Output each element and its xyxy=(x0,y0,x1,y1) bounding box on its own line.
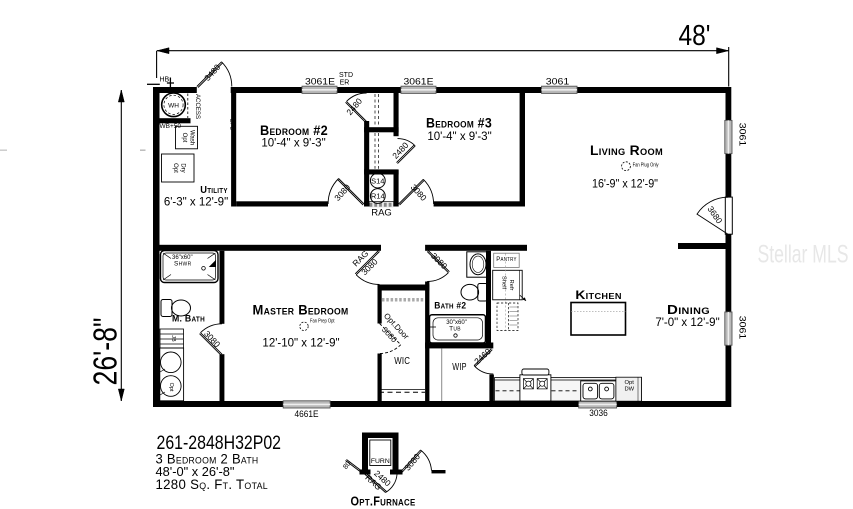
svg-text:3061: 3061 xyxy=(738,316,748,340)
svg-text:1280 Sq. Ft. Total: 1280 Sq. Ft. Total xyxy=(156,477,269,492)
svg-text:Pantry: Pantry xyxy=(496,256,517,263)
svg-text:HB: HB xyxy=(160,77,170,84)
svg-text:Bedroom #3: Bedroom #3 xyxy=(426,116,492,131)
svg-text:Living Room: Living Room xyxy=(590,143,663,158)
svg-text:Shelf: Shelf xyxy=(501,276,507,290)
svg-text:12'-10" x 12'-9": 12'-10" x 12'-9" xyxy=(262,338,339,350)
svg-text:Dry: Dry xyxy=(180,163,186,172)
svg-text:7'-0" x 12'-9": 7'-0" x 12'-9" xyxy=(655,317,719,329)
svg-text:WIC: WIC xyxy=(394,356,410,367)
svg-text:RAG: RAG xyxy=(371,208,392,219)
svg-text:10'-4" x 9'-3": 10'-4" x 9'-3" xyxy=(427,131,491,143)
svg-text:3061: 3061 xyxy=(546,77,570,87)
svg-text:3061E: 3061E xyxy=(404,77,434,87)
svg-text:Opt: Opt xyxy=(168,383,174,392)
svg-text:Bath #2: Bath #2 xyxy=(434,301,466,312)
svg-text:Kitchen: Kitchen xyxy=(575,288,622,302)
svg-text:Refr: Refr xyxy=(508,280,514,291)
svg-text:26'-8": 26'-8" xyxy=(87,318,124,386)
svg-text:ACCESS: ACCESS xyxy=(194,94,201,120)
svg-text:Stellar MLS: Stellar MLS xyxy=(758,241,849,269)
svg-text:FURN: FURN xyxy=(371,458,390,465)
svg-text:DW: DW xyxy=(625,387,635,393)
svg-text:Tub: Tub xyxy=(449,326,461,333)
svg-text:Fan Plug Only: Fan Plug Only xyxy=(633,163,659,169)
svg-text:Utility: Utility xyxy=(200,184,228,196)
svg-text:6'-3" x 12'-9": 6'-3" x 12'-9" xyxy=(164,197,228,209)
svg-text:WIP: WIP xyxy=(452,362,467,373)
svg-text:R14: R14 xyxy=(371,192,385,201)
svg-text:10'-4" x 9'-3": 10'-4" x 9'-3" xyxy=(261,138,325,150)
svg-text:3061E: 3061E xyxy=(305,77,335,87)
svg-text:ER: ER xyxy=(340,80,350,87)
svg-text:48': 48' xyxy=(679,20,711,52)
svg-text:JB: JB xyxy=(170,335,176,342)
svg-text:3036: 3036 xyxy=(589,408,608,418)
svg-text:Opt: Opt xyxy=(181,133,187,143)
svg-text:4661E: 4661E xyxy=(295,409,319,419)
svg-text:Opt: Opt xyxy=(172,163,178,173)
svg-text:Wash: Wash xyxy=(189,130,195,145)
svg-text:Fan Prep Opt: Fan Prep Opt xyxy=(310,318,335,324)
svg-text:16'-9" x 12'-9": 16'-9" x 12'-9" xyxy=(592,179,658,191)
svg-text:WH: WH xyxy=(168,103,179,110)
svg-text:STD: STD xyxy=(339,72,353,79)
svg-text:S14: S14 xyxy=(371,176,384,185)
svg-text:Bedroom #2: Bedroom #2 xyxy=(260,123,328,138)
svg-text:Master Bedroom: Master Bedroom xyxy=(253,303,349,318)
svg-text:M. Bath: M. Bath xyxy=(172,314,205,325)
svg-text:3061: 3061 xyxy=(738,123,748,147)
svg-text:Opt.Furnace: Opt.Furnace xyxy=(351,495,416,509)
svg-text:Dining: Dining xyxy=(667,303,710,317)
svg-text:Opt: Opt xyxy=(625,380,635,386)
svg-text:EPB: EPB xyxy=(229,118,235,130)
svg-text:Shwr: Shwr xyxy=(174,261,192,268)
